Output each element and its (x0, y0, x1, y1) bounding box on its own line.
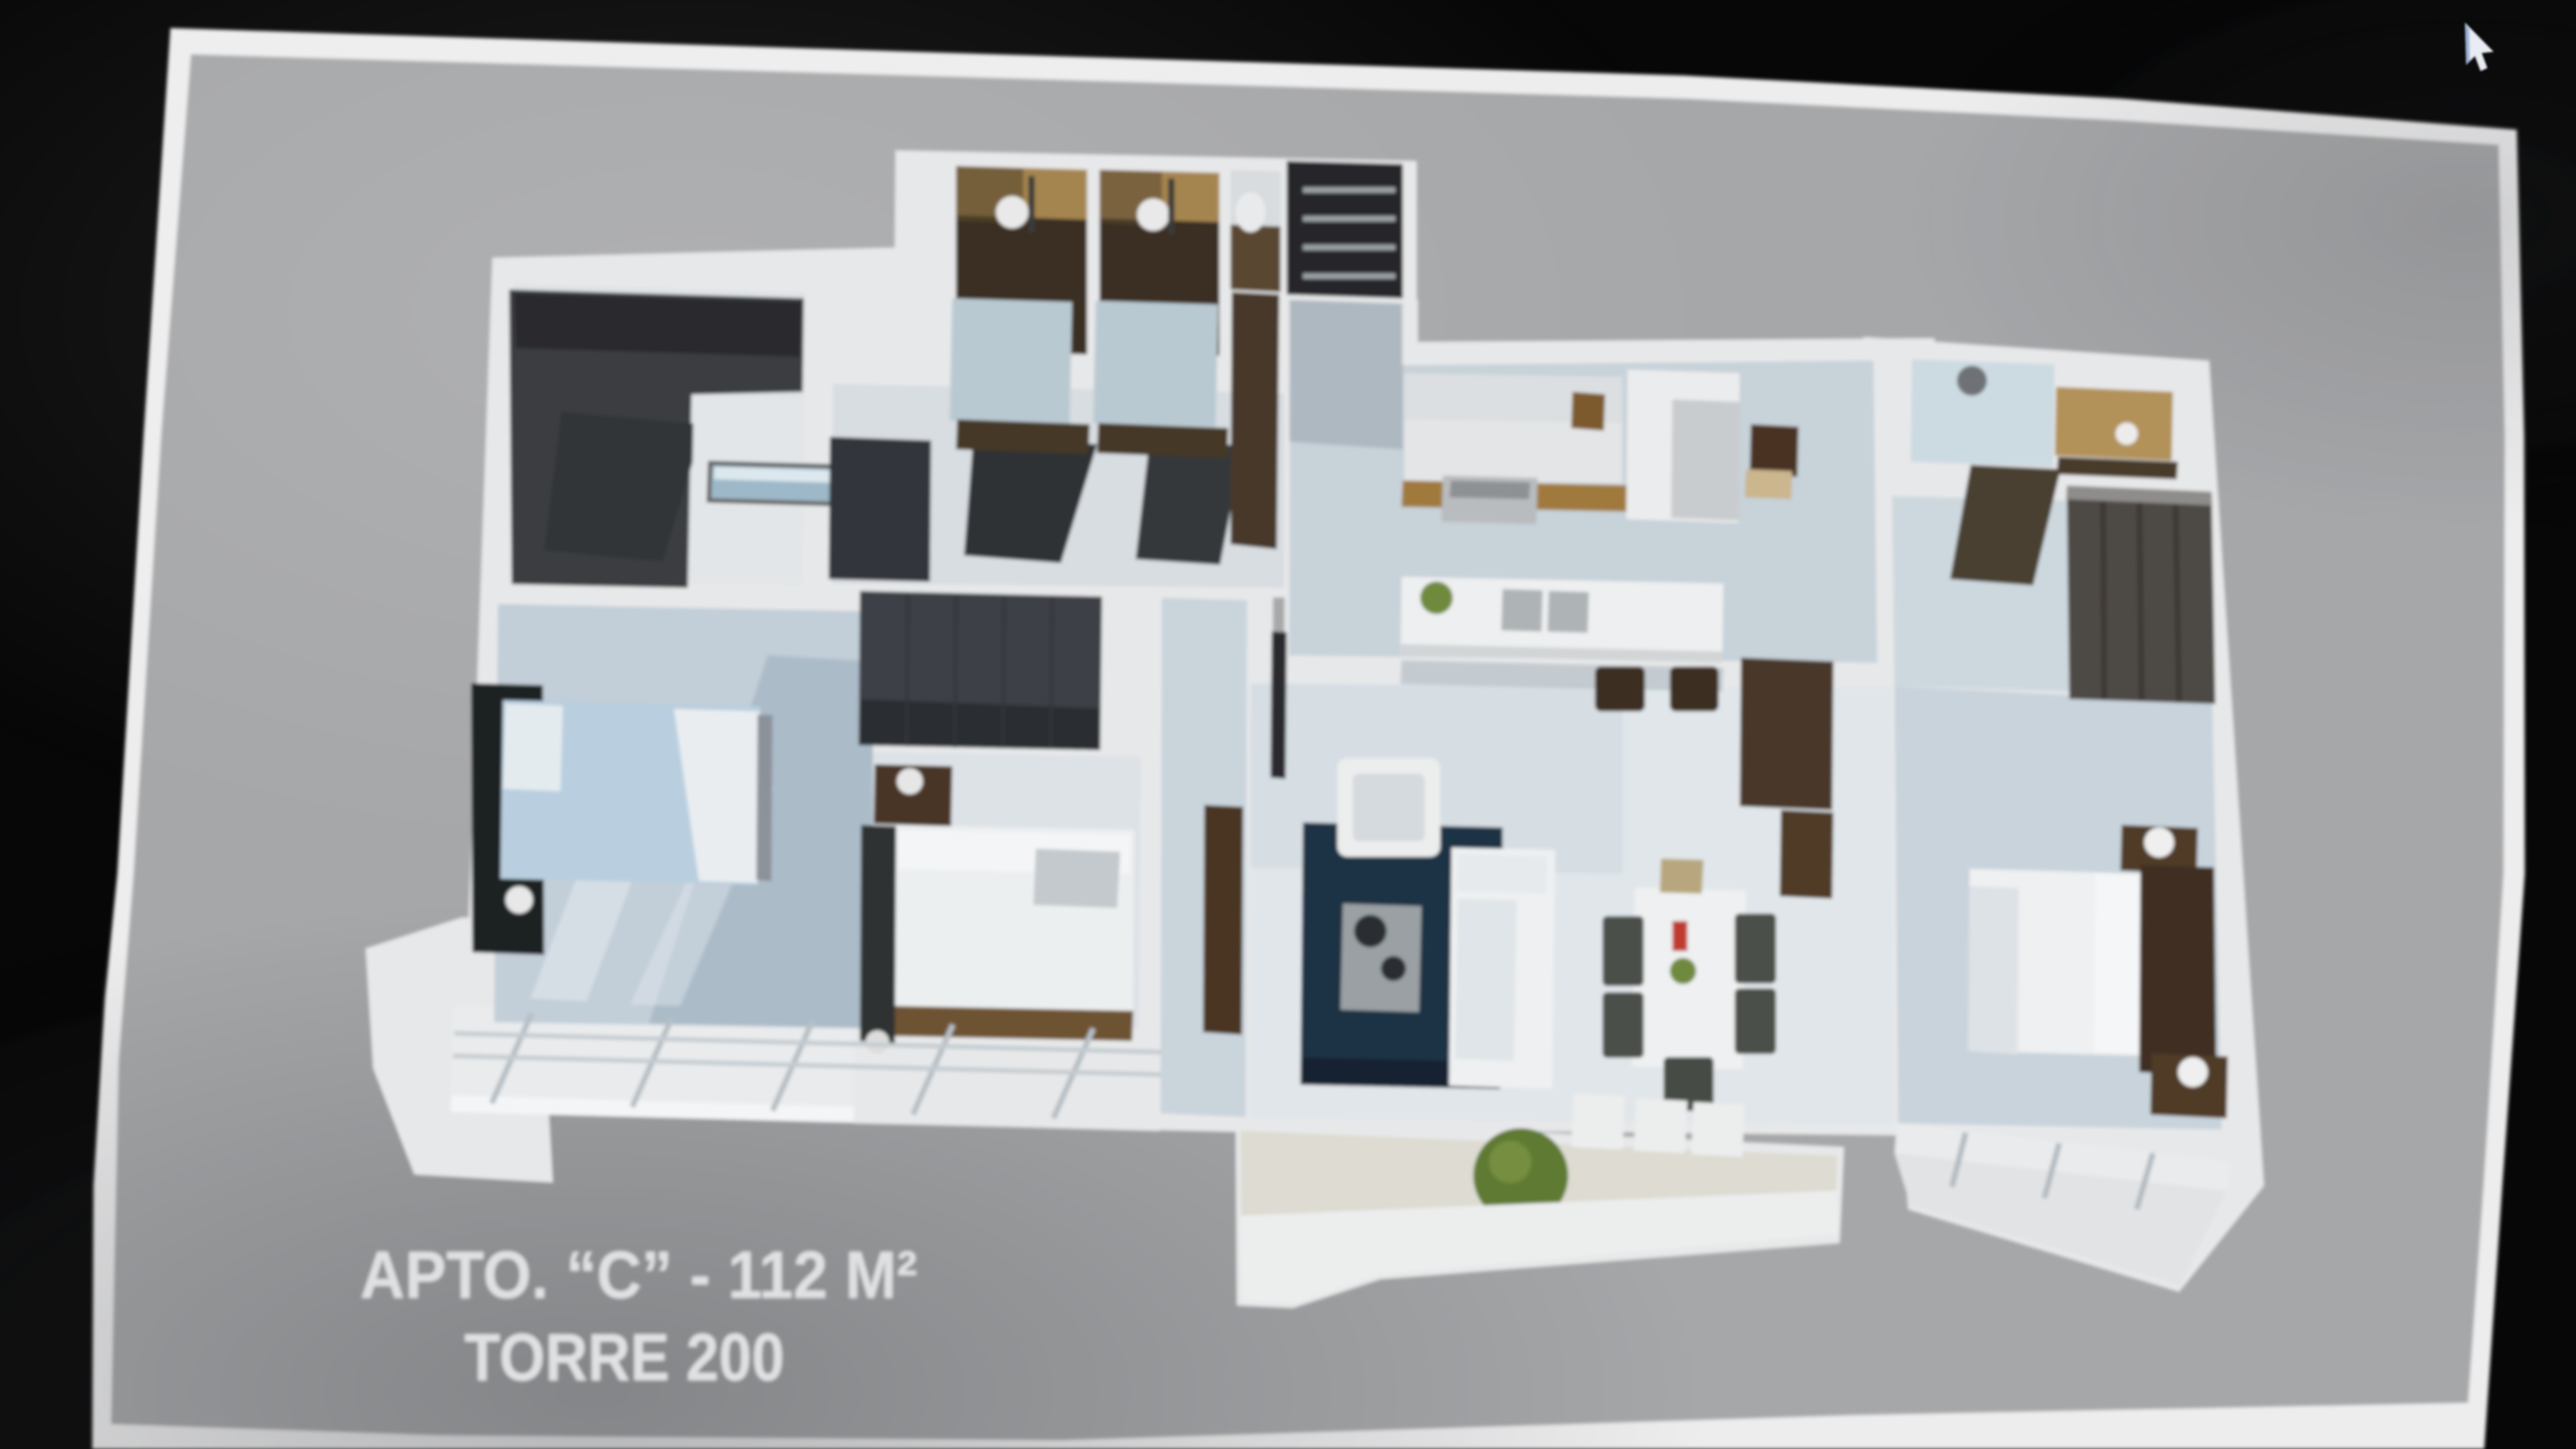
svg-text:TORRE 200: TORRE 200 (464, 1319, 784, 1395)
svg-text:APTO. “C” - 112 M²: APTO. “C” - 112 M² (360, 1237, 917, 1312)
